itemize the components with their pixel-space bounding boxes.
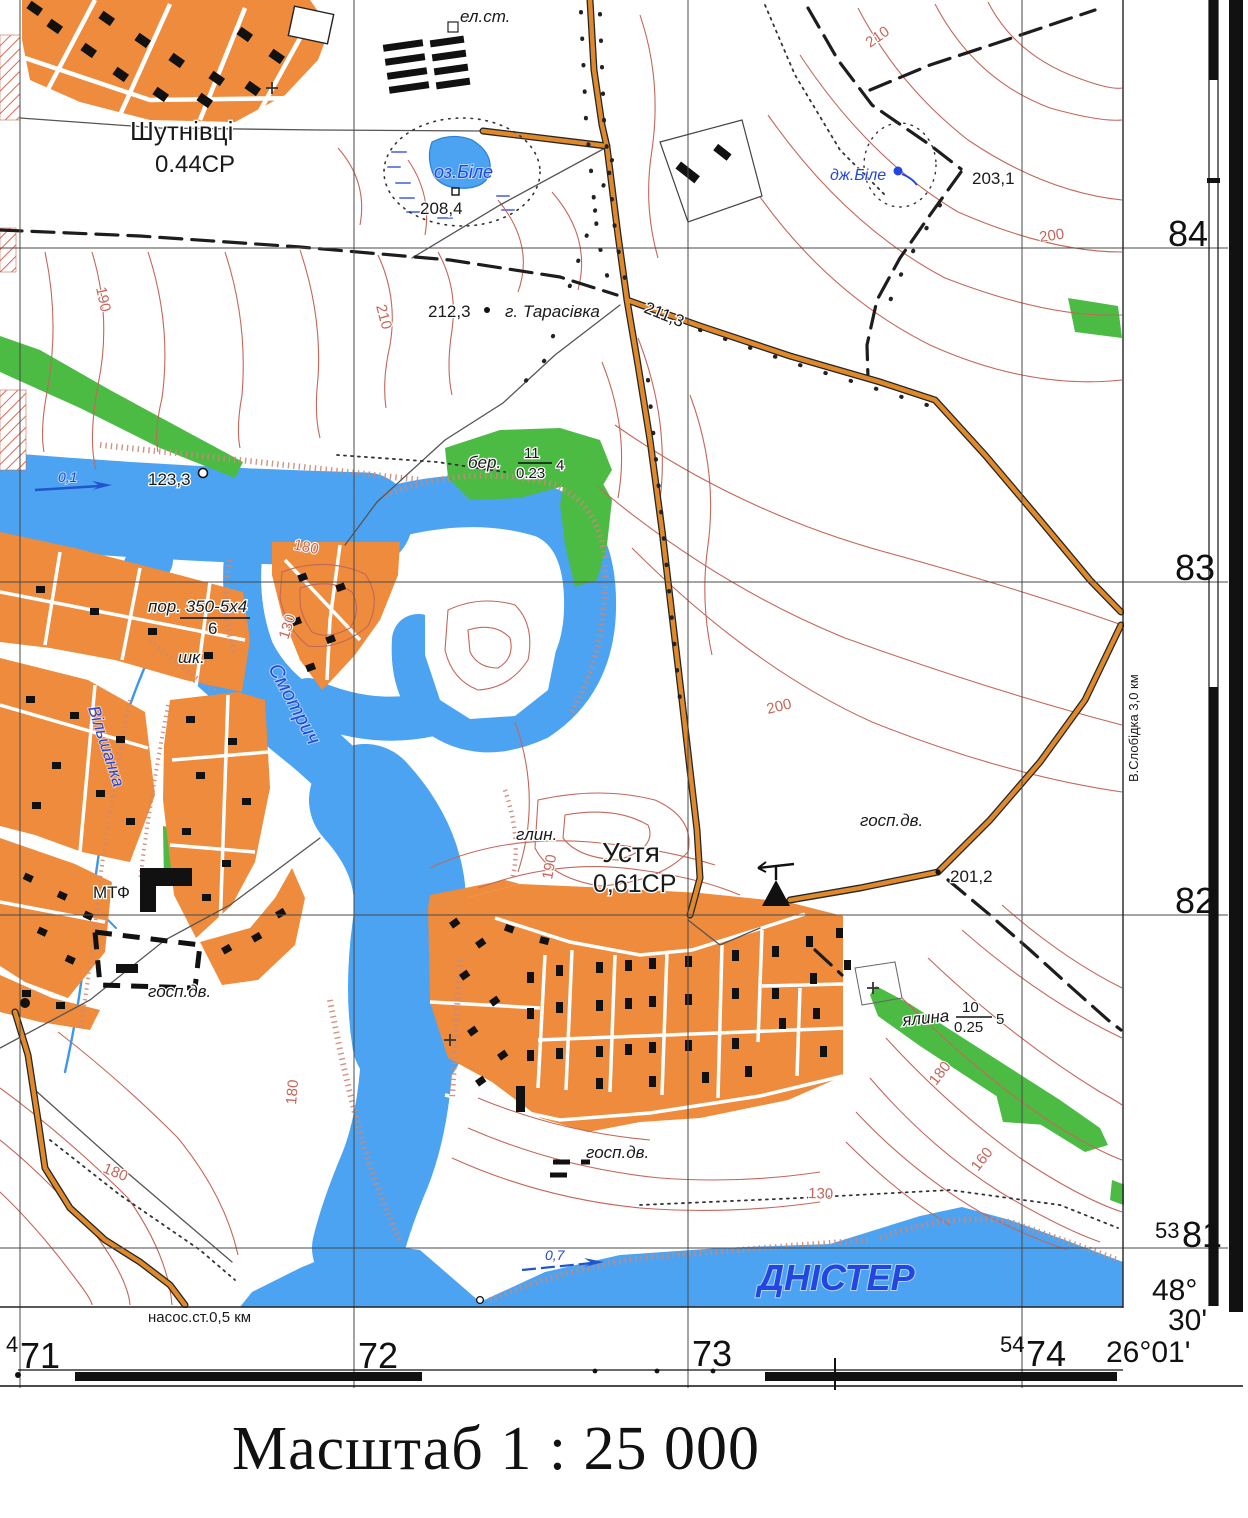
label-gosp-dv-3: госп.дв. xyxy=(586,1143,649,1162)
label-gosp-dv-1: госп.дв. xyxy=(148,982,211,1001)
label-lake-elev: 208,4 xyxy=(420,199,463,218)
label-slobidka-note: В.Слобідка 3,0 км xyxy=(1126,674,1141,782)
contour-label-200a: 200 xyxy=(1038,226,1065,246)
contour-label-180d: 180 xyxy=(283,1079,302,1105)
northing-81-prefix: 53 xyxy=(1155,1218,1179,1243)
northing-81: 81 xyxy=(1182,1214,1222,1255)
label-spring-elev: 203,1 xyxy=(972,169,1015,188)
label-flow-07: 0,7 xyxy=(545,1247,566,1263)
label-birch-extra: 4 xyxy=(556,457,564,474)
northing-82: 82 xyxy=(1175,880,1215,921)
map-background xyxy=(0,0,1248,1390)
label-mtf: МТФ xyxy=(93,883,130,902)
northing-84: 84 xyxy=(1168,213,1208,254)
easting-71-prefix: 4 xyxy=(6,1332,18,1357)
label-clay: глин. xyxy=(516,825,557,844)
label-flow-01: 0,1 xyxy=(58,469,77,485)
settlement-name-shutnivtsi: Шутнівці xyxy=(130,116,233,146)
spot-123-symbol xyxy=(199,469,208,478)
label-birch-den: 0.23 xyxy=(516,465,545,482)
label-spruce-den: 0.25 xyxy=(954,1019,983,1036)
label-spot-123: 123,3 xyxy=(148,470,191,489)
label-spot-201: 201,2 xyxy=(950,867,993,886)
label-birch-num: 11 xyxy=(524,445,540,462)
corner-lon: 26°01' xyxy=(1106,1336,1190,1369)
easting-72: 72 xyxy=(358,1335,398,1376)
el-st-building xyxy=(448,22,458,32)
label-school: шк. xyxy=(178,648,205,667)
label-gosp-dv-2: госп.дв. xyxy=(860,811,923,830)
label-hill-name: г. Тарасівка xyxy=(505,302,600,321)
label-el-st: ел.ст. xyxy=(460,7,510,26)
label-spruce-num: 10 xyxy=(962,999,979,1016)
label-hill-elev: 212,3 xyxy=(428,302,471,321)
tower-symbol xyxy=(20,998,30,1008)
map-canvas: Шутнівці 0.44СР ел.ст. оз.Біле 208,4 дж.… xyxy=(0,0,1248,1390)
spot-201-symbol xyxy=(935,869,940,874)
easting-74-prefix: 54 xyxy=(1000,1332,1024,1357)
scale-caption-text: Масштаб 1 : 25 000 xyxy=(232,1415,760,1483)
contour-label-130b: 130 xyxy=(808,1185,834,1203)
corner-lat-min: 30' xyxy=(1168,1304,1207,1337)
spot-212-symbol xyxy=(484,307,490,313)
label-spring-bile: дж.Біле xyxy=(830,167,886,184)
label-rapids: пор. 350-5x4 xyxy=(148,597,247,616)
settlement-info-shutnivtsi: 0.44СР xyxy=(155,151,235,178)
spot-208-symbol xyxy=(452,188,459,195)
settlement-name-ustia: Устя xyxy=(602,837,660,868)
corner-lat-deg: 48° xyxy=(1152,1274,1197,1307)
label-river-dnister: ДНІСТЕР xyxy=(755,1257,916,1298)
easting-74: 74 xyxy=(1026,1333,1066,1374)
scale-caption: Масштаб 1 : 25 000 xyxy=(0,1414,1248,1485)
easting-71: 71 xyxy=(20,1335,60,1376)
label-rapids-den: 6 xyxy=(208,619,217,638)
label-lake-bile: оз.Біле xyxy=(434,162,493,182)
topographic-map-page: Шутнівці 0.44СР ел.ст. оз.Біле 208,4 дж.… xyxy=(0,0,1248,1518)
label-pump-station: насос.ст.0,5 км xyxy=(148,1309,251,1326)
label-spruce-extra: 5 xyxy=(996,1011,1004,1028)
label-birch: бер. xyxy=(468,453,501,472)
settlement-info-ustia: 0,61СР xyxy=(593,870,676,898)
easting-73: 73 xyxy=(692,1333,732,1374)
meander-island xyxy=(425,566,558,719)
northing-83: 83 xyxy=(1175,547,1215,588)
